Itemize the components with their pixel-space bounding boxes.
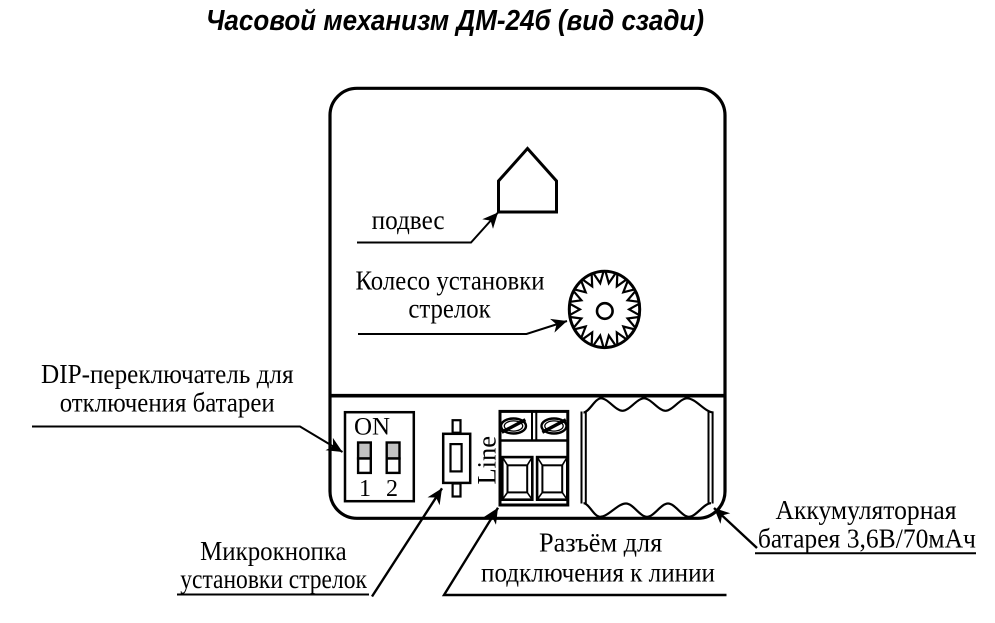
svg-text:отключения батареи: отключения батареи: [60, 387, 275, 417]
svg-text:установки стрелок: установки стрелок: [180, 564, 367, 594]
svg-text:подключения к линии: подключения к линии: [481, 558, 715, 588]
svg-text:Колесо установки: Колесо установки: [356, 265, 545, 295]
svg-text:Разъём для: Разъём для: [539, 528, 662, 558]
svg-text:ON: ON: [354, 414, 390, 441]
svg-text:1: 1: [359, 476, 371, 502]
svg-text:стрелок: стрелок: [408, 294, 491, 324]
svg-text:Часовой механизм ДМ-24б (вид с: Часовой механизм ДМ-24б (вид сзади): [206, 5, 704, 37]
svg-text:Микрокнопка: Микрокнопка: [200, 536, 347, 566]
svg-text:Line: Line: [472, 436, 502, 485]
svg-text:подвес: подвес: [372, 205, 445, 235]
svg-text:DIP-переключатель для: DIP-переключатель для: [41, 359, 294, 389]
svg-text:2: 2: [386, 476, 398, 502]
svg-text:Аккумуляторная: Аккумуляторная: [776, 495, 957, 525]
svg-text:батарея 3,6В/70мАч: батарея 3,6В/70мАч: [758, 524, 976, 554]
